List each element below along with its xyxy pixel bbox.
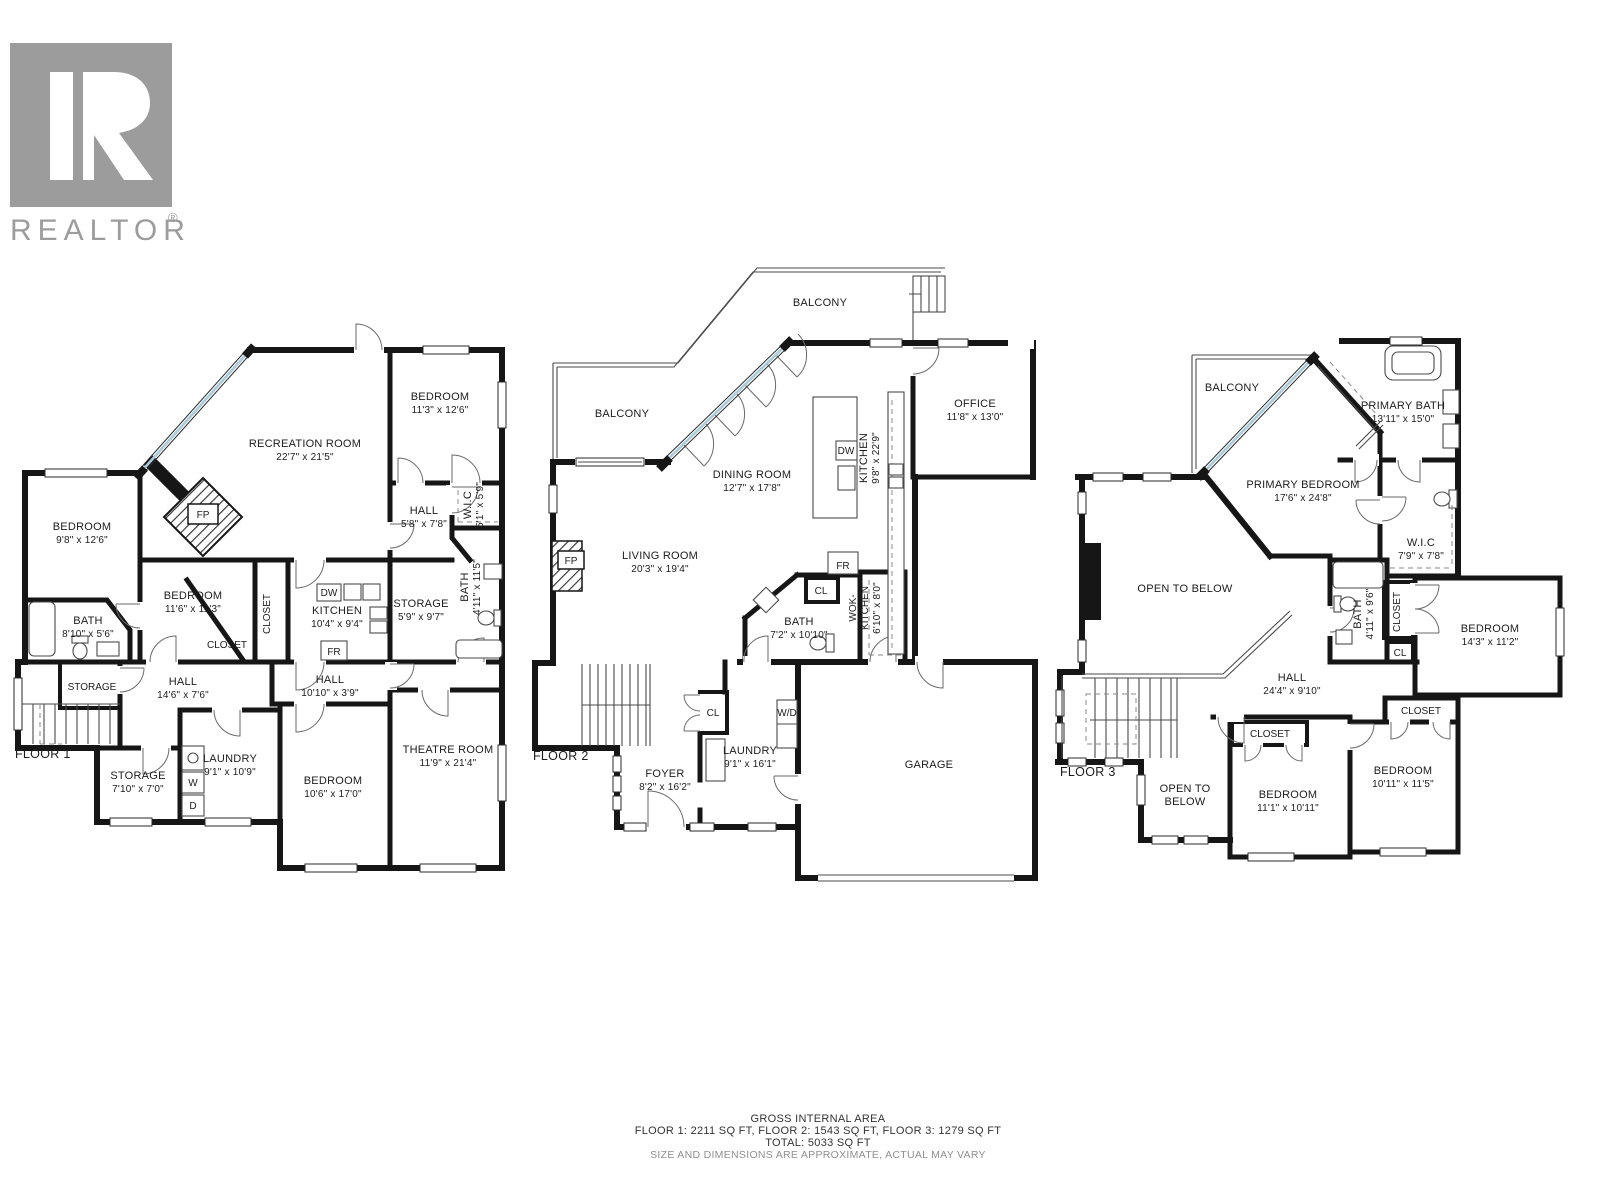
bathtub-icon	[1385, 346, 1441, 380]
room-dims: 7'9" x 7'8"	[1398, 551, 1444, 562]
floor-2-label: FLOOR 2	[533, 749, 589, 763]
floor-2-walls	[535, 343, 1035, 878]
room-dims: 7'2" x 10'10"	[770, 630, 828, 641]
room-label: FOYER	[645, 768, 684, 780]
room-dims: 10'11" x 11'5"	[1372, 779, 1434, 790]
dryer-label: D	[189, 801, 196, 812]
room-dims: 5'1" x 5'9"	[475, 482, 486, 528]
room-dims: 9'1" x 16'1"	[724, 759, 776, 770]
room-dims: 4'11" x 9'6"	[1365, 588, 1376, 639]
floor-2-plan: BALCONY BALCONY DINING ROOM 12'7" x 17'8…	[533, 268, 1035, 885]
room-label: KITCHEN	[312, 605, 362, 617]
balcony-label: BALCONY	[793, 297, 848, 309]
room-label: LAUNDRY	[203, 753, 258, 765]
room-label: BATH	[784, 616, 814, 628]
closet-label: CLOSET	[1392, 592, 1403, 632]
room-dims: 20'3" x 19'4"	[631, 564, 689, 575]
room-label: BEDROOM	[1259, 789, 1318, 801]
dw-label: DW	[838, 446, 855, 457]
floor-2-balcony-outline	[553, 268, 945, 462]
room-dims: 24'4" x 9'10"	[1263, 686, 1321, 697]
room-dims: 7'10" x 7'0"	[112, 784, 164, 795]
floor-3-label: FLOOR 3	[1060, 765, 1116, 779]
floor-3-plan: BALCONY PRIMARY BATH 13'11" x 15'0" PRIM…	[1056, 337, 1564, 861]
room-dims: 10'4" x 9'4"	[311, 619, 363, 630]
realtor-logo-text: REALTOR	[10, 214, 191, 247]
room-dims: 14'3" x 11'2"	[1462, 637, 1519, 648]
open-to-below-label: OPEN TO	[1160, 783, 1211, 795]
room-dims: 12'7" x 17'8"	[723, 483, 781, 494]
room-dims: 8'10" x 5'6"	[62, 629, 114, 640]
floorplan-image: REALTOR ®	[0, 0, 1600, 1200]
floor-3-windows	[1056, 337, 1564, 861]
closet-label: CLOSET	[262, 594, 273, 634]
room-label: STORAGE	[68, 682, 117, 693]
closet-label: CLOSET	[1250, 729, 1290, 740]
sink-icon	[97, 642, 119, 656]
room-dims: 13'11" x 15'0"	[1372, 414, 1435, 425]
room-label: STORAGE	[110, 770, 165, 782]
washer-dryer-label: W/D	[777, 708, 796, 719]
kitchen-sink-icon	[344, 584, 361, 600]
closet-label: CLOSET	[1401, 706, 1441, 717]
room-dims: 4'11" x 11'5"	[472, 559, 483, 615]
footer-floor-areas: FLOOR 1: 2211 SQ FT, FLOOR 2: 1543 SQ FT…	[635, 1125, 1002, 1137]
room-label: BEDROOM	[411, 391, 470, 403]
fireplace-label: FP	[565, 556, 578, 567]
room-dims: 11'6" x 11'3"	[165, 604, 221, 615]
room-label: W.I.C	[462, 491, 474, 519]
dw-label: DW	[321, 588, 338, 599]
floor-1-window-diagonal	[136, 346, 254, 478]
room-dims: 5'8" x 7'8"	[401, 519, 447, 530]
room-label: LIVING ROOM	[622, 550, 698, 562]
sink-icon	[1336, 630, 1352, 644]
room-label: HALL	[169, 676, 198, 688]
room-dims: 8'2" x 16'2"	[639, 782, 691, 793]
room-dims: 22'7" x 21'5"	[276, 452, 334, 463]
sink-icon	[1443, 390, 1459, 414]
closet-label: CL	[815, 586, 828, 597]
room-dims: 5'9" x 9'7"	[398, 612, 444, 623]
footer-area-summary: GROSS INTERNAL AREA FLOOR 1: 2211 SQ FT,…	[635, 1113, 1002, 1161]
room-dims: 14'6" x 7'6"	[157, 690, 209, 701]
sink-icon	[484, 564, 502, 579]
room-label: BATH	[73, 615, 103, 627]
room-label: THEATRE ROOM	[403, 744, 494, 756]
fr-label: FR	[327, 647, 340, 658]
laundry-sink-icon	[182, 746, 204, 770]
closet-label: CL	[1394, 648, 1407, 659]
floorplan-page: REALTOR ®	[0, 0, 1600, 1200]
room-dims: 9'8" x 12'6"	[56, 535, 108, 546]
room-label: STORAGE	[393, 598, 448, 610]
room-label: KITCHEN	[858, 433, 870, 483]
room-dims: 11'9" x 21'4"	[420, 758, 477, 769]
room-label: BATH	[1352, 599, 1364, 629]
room-dims: 11'8" x 13'0"	[947, 412, 1004, 423]
fireplace-label: FP	[197, 510, 210, 521]
washer-label: W	[188, 778, 198, 789]
room-label: BATH	[459, 572, 471, 602]
bathtub-icon	[456, 640, 502, 658]
room-label: HALL	[1278, 672, 1307, 684]
room-label: BEDROOM	[304, 775, 363, 787]
room-label: BEDROOM	[53, 521, 112, 533]
floor-3-railing	[1082, 611, 1292, 678]
floor-1-label: FLOOR 1	[15, 747, 71, 761]
stove-icon	[370, 607, 387, 619]
room-label: GARAGE	[905, 759, 954, 771]
room-dims: 10'6" x 17'0"	[304, 789, 362, 800]
floor-2-window-diagonal	[659, 339, 792, 469]
room-label: KITCHEN	[860, 586, 871, 630]
room-dims: 9'1" x 10'9"	[204, 767, 256, 778]
fr-label: FR	[836, 561, 849, 572]
closet-label: CLOSET	[207, 640, 247, 651]
room-label: LAUNDRY	[723, 745, 778, 757]
bathtub-icon	[1333, 562, 1383, 588]
balcony-label: BALCONY	[595, 408, 650, 420]
room-label: W.I.C	[1407, 537, 1435, 549]
room-label: PRIMARY BEDROOM	[1246, 479, 1359, 491]
room-dims: 11'3" x 12'6"	[412, 405, 469, 416]
room-dims: 9'8" x 22'9"	[871, 432, 882, 484]
open-to-below-label: BELOW	[1165, 796, 1206, 808]
garage-door	[818, 871, 1014, 885]
realtor-logo: REALTOR ®	[10, 43, 191, 247]
room-label: HALL	[410, 505, 439, 517]
floor-2-stairs	[582, 664, 650, 746]
room-label: RECREATION ROOM	[249, 438, 361, 450]
room-dims: 17'6" x 24'8"	[1274, 493, 1332, 504]
kitchen-counter	[888, 392, 904, 654]
room-label: BEDROOM	[1461, 623, 1520, 635]
room-label: PRIMARY BATH	[1361, 400, 1445, 412]
room-label: BEDROOM	[1374, 765, 1433, 777]
room-dims: 6'10" x 8'0"	[872, 582, 883, 634]
footer-total-area: TOTAL: 5033 SQ FT	[765, 1137, 871, 1149]
toilet-icon	[494, 610, 501, 626]
floor-1-plan: RECREATION ROOM 22'7" x 21'5" BEDROOM 11…	[14, 324, 506, 872]
room-label: DINING ROOM	[713, 469, 792, 481]
balcony-label: BALCONY	[1205, 382, 1260, 394]
room-label: OFFICE	[954, 398, 996, 410]
footer-title: GROSS INTERNAL AREA	[751, 1113, 886, 1125]
room-label: HALL	[316, 674, 345, 686]
open-to-below-label: OPEN TO BELOW	[1137, 583, 1233, 595]
floor-2-windows	[549, 339, 1014, 885]
chimney-block	[1085, 543, 1101, 620]
bathtub-icon	[29, 602, 55, 656]
room-label: BEDROOM	[164, 590, 223, 602]
island-sink-icon	[838, 466, 855, 490]
stove-icon	[889, 464, 903, 475]
footer-disclaimer: SIZE AND DIMENSIONS ARE APPROXIMATE, ACT…	[650, 1149, 986, 1161]
floor-3-window-diagonal	[1198, 354, 1317, 478]
registered-mark: ®	[168, 210, 178, 225]
room-label: WOK-	[848, 594, 859, 621]
floor-2-labels: BALCONY BALCONY DINING ROOM 12'7" x 17'8…	[533, 297, 1004, 793]
room-dims: 11'1" x 10'11"	[1257, 803, 1319, 814]
closet-label: CL	[707, 708, 720, 719]
floor-3-stairs	[1062, 676, 1177, 758]
floor-3-walls	[1058, 341, 1560, 857]
sink-icon	[1443, 424, 1459, 448]
room-dims: 10'10" x 3'9"	[301, 688, 359, 699]
